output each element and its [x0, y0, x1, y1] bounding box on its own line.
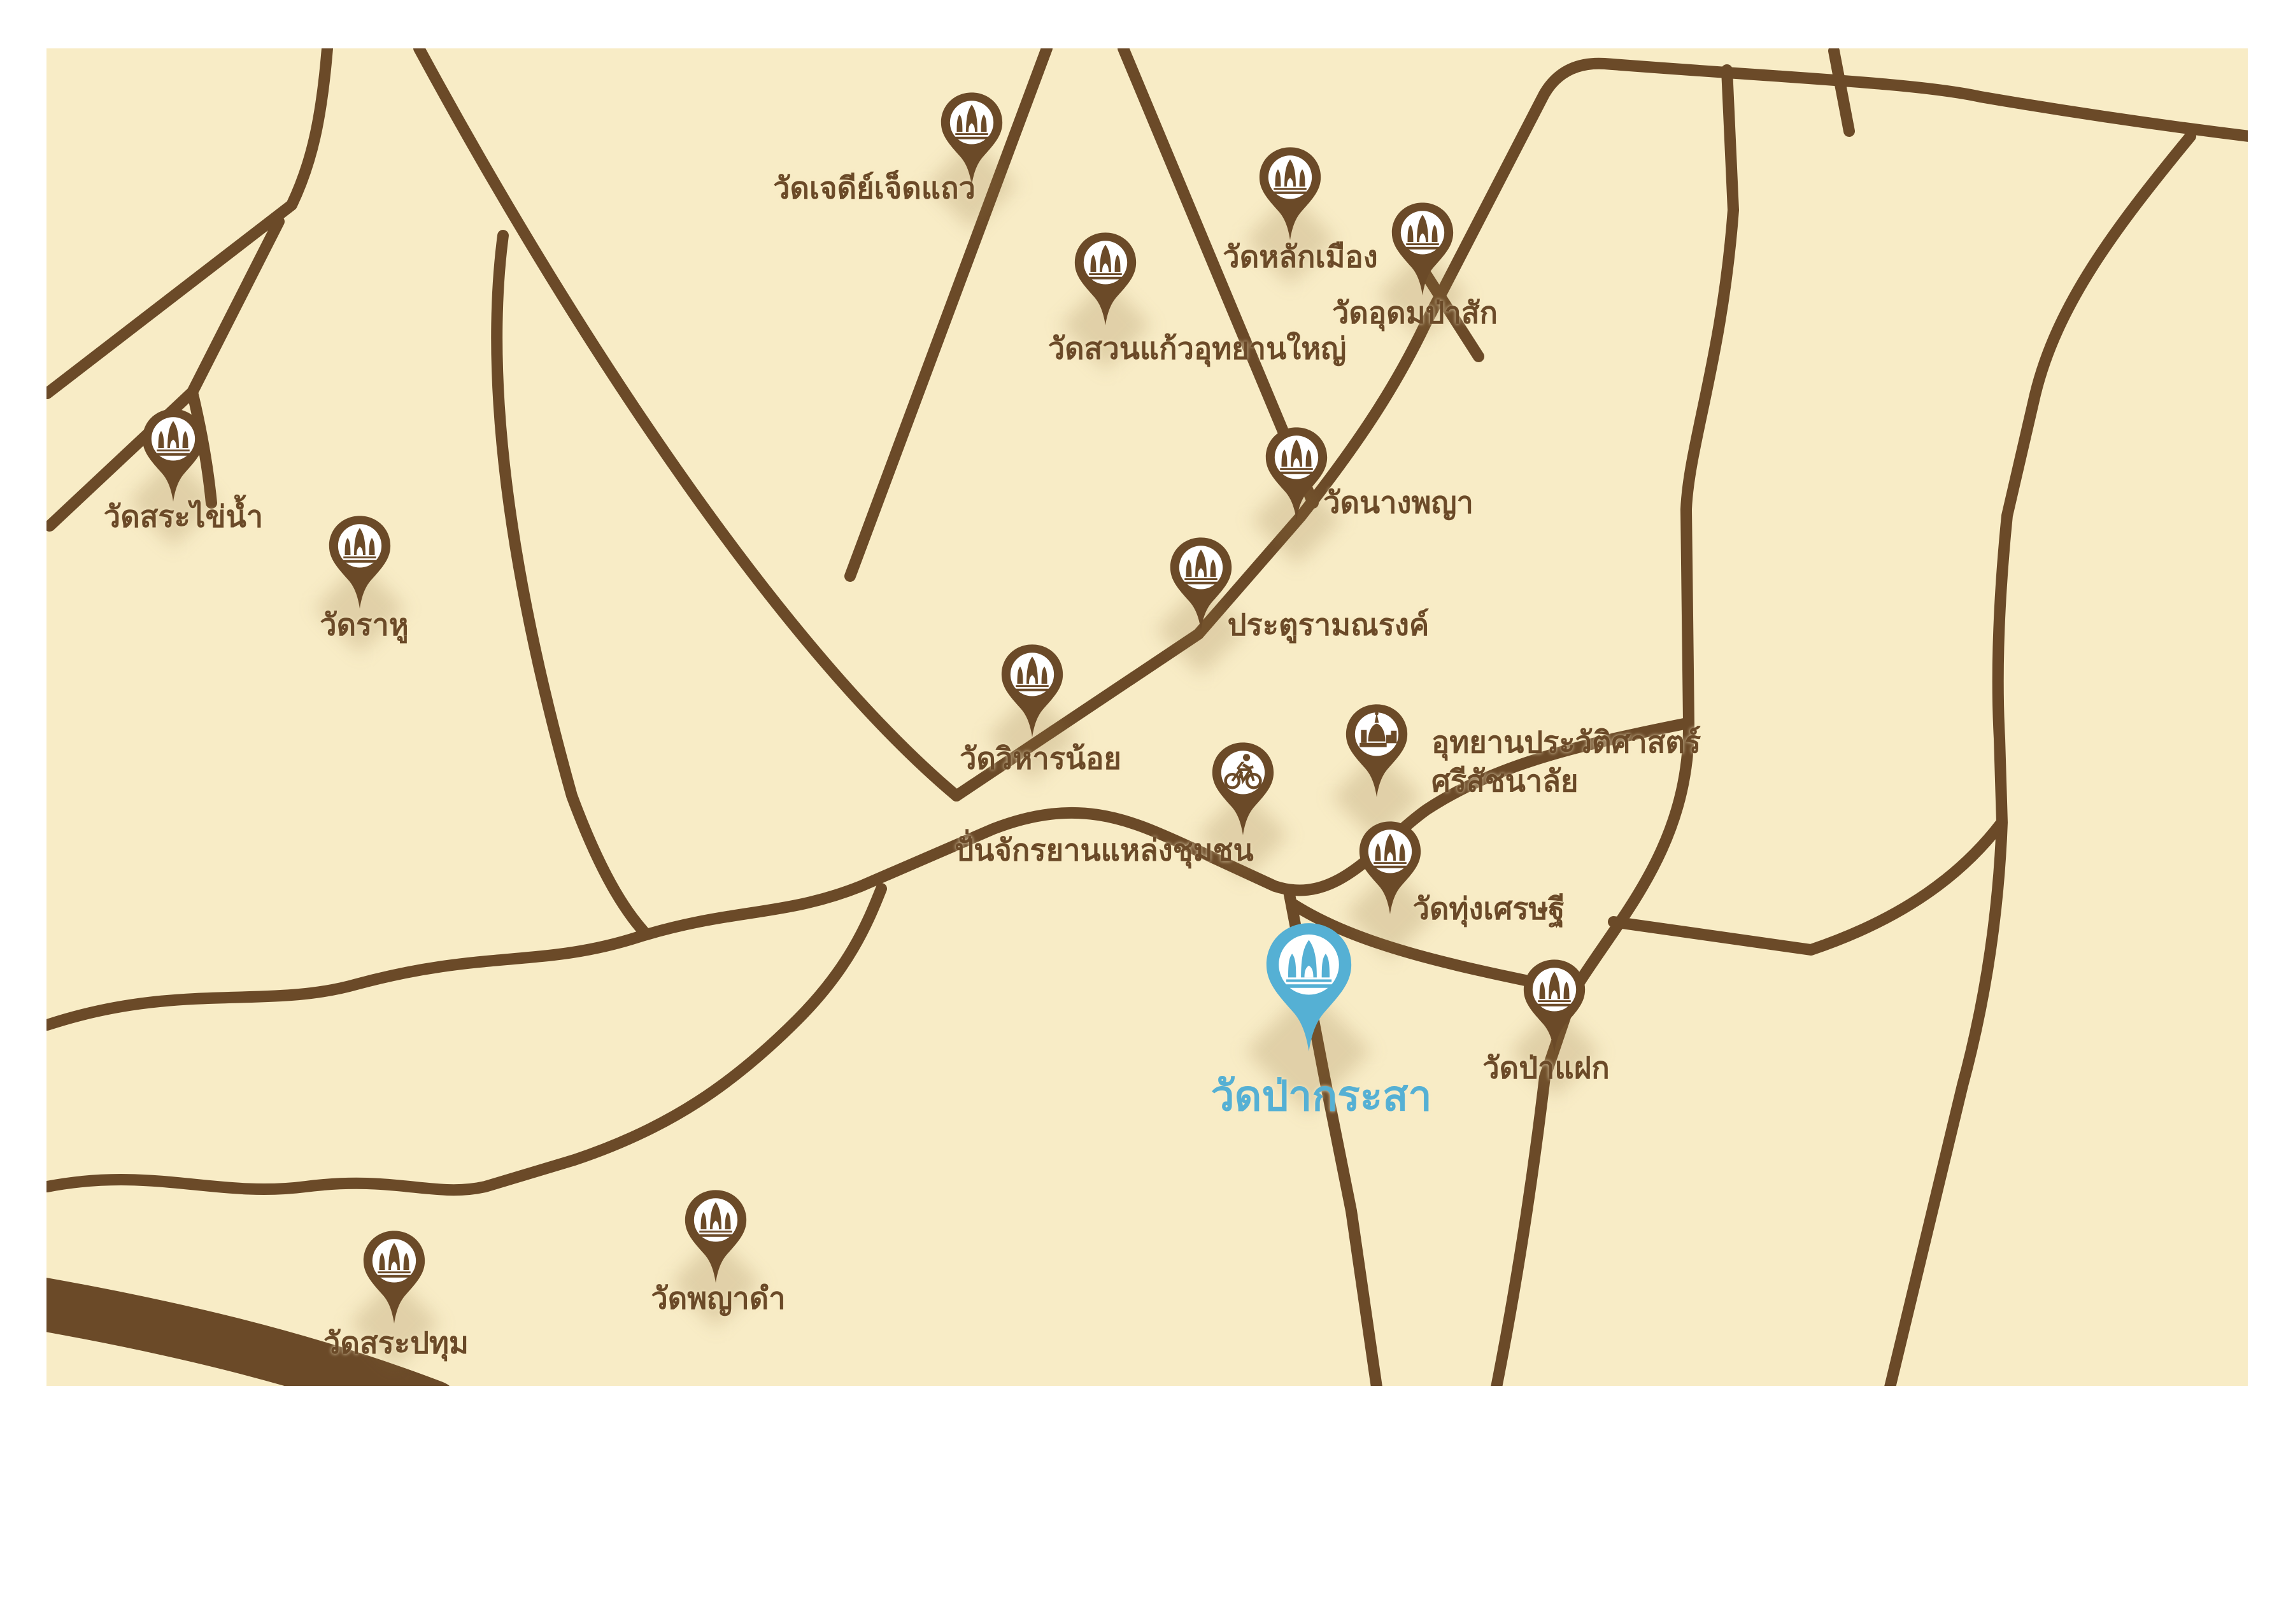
road-7: [956, 64, 2248, 796]
map-pin-label-bike-community-spot: ปั่นจักรยานแหล่งชุมชน: [955, 831, 1253, 870]
temple-icon: [997, 643, 1068, 743]
temple-icon: [138, 407, 209, 507]
temple-icon: [1070, 231, 1141, 331]
map-pin-label-wat-sa-pathum: วัดสระปทุม: [323, 1324, 469, 1362]
info-panel: ๐มรดกพระร่วง๐ วัดป่ากระสา ที่อยู่ :อุทยา…: [0, 1386, 2279, 1624]
temple-icon: [359, 1229, 430, 1329]
road-16: [47, 889, 881, 1190]
map-pin-wat-wihan-noi[interactable]: [997, 643, 1068, 743]
map-pin-label-wat-sa-khai-nam: วัดสระไข่น้ำ: [104, 497, 263, 536]
temple-icon: [1254, 146, 1326, 246]
map-pin-label-wat-chedi-chet-thaeo: วัดเจดีย์เจ็ดแถว: [773, 169, 976, 208]
temple-icon: [1261, 426, 1332, 526]
historical-park-icon: [1341, 703, 1412, 803]
map-pin-wat-phaya-dam[interactable]: [680, 1189, 751, 1289]
temple-icon: [1387, 201, 1458, 301]
map-pin-wat-pa-faek[interactable]: [1519, 958, 1590, 1058]
bicycle-icon: [1207, 741, 1279, 841]
map-pin-wat-rahu[interactable]: [324, 514, 395, 614]
map-pin-bike-community-spot[interactable]: [1207, 741, 1279, 841]
map-pin-label-wat-pa-krasa: วัดป่ากระสา: [1210, 1069, 1431, 1124]
map-pin-label-wat-lak-mueang: วัดหลักเมือง: [1223, 237, 1377, 276]
map-pin-pratu-ram-narong[interactable]: [1165, 536, 1237, 636]
road-1: [47, 48, 327, 393]
temple-icon: [680, 1189, 751, 1289]
map-pin-wat-sa-khai-nam[interactable]: [138, 407, 209, 507]
map-pin-wat-sa-pathum[interactable]: [359, 1229, 430, 1329]
map-pin-wat-nang-phaya[interactable]: [1261, 426, 1332, 526]
map-pin-label-wat-udom-pa-sak: วัดอุดมป่าสัก: [1332, 293, 1498, 332]
road-11: [1890, 136, 2190, 1386]
map-pin-label-wat-pa-faek: วัดป่าแฝก: [1482, 1049, 1609, 1087]
temple-icon: [1165, 536, 1237, 636]
map-pin-si-satchanalai-historical-park[interactable]: [1341, 703, 1412, 803]
map-pin-label-si-satchanalai-historical-park: อุทยานประวัติศาสตร์ ศรีสัชนาลัย: [1431, 723, 1701, 801]
map-pin-label-wat-rahu: วัดราหู: [320, 605, 409, 644]
temple-icon: [324, 514, 395, 614]
map-pin-wat-suan-kaeo-utthayan-yai[interactable]: [1070, 231, 1141, 331]
temple-icon: [1260, 921, 1358, 1059]
road-5: [497, 236, 646, 935]
map-canvas[interactable]: วัดเจดีย์เจ็ดแถว วัดสวนแก้วอุทยานใหญ่ วั…: [46, 48, 2248, 1386]
road-10: [1834, 51, 1849, 131]
map-pin-wat-lak-mueang[interactable]: [1254, 146, 1326, 246]
map-pin-wat-pa-krasa[interactable]: [1260, 921, 1358, 1059]
road-12: [1614, 824, 2001, 950]
map-pin-wat-udom-pa-sak[interactable]: [1387, 201, 1458, 301]
map-pin-label-wat-thung-setthi: วัดทุ่งเศรษฐี: [1413, 889, 1565, 928]
page: วัดเจดีย์เจ็ดแถว วัดสวนแก้วอุทยานใหญ่ วั…: [0, 0, 2279, 1624]
temple-icon: [1519, 958, 1590, 1058]
road-network: [46, 48, 2248, 1386]
map-pin-label-wat-nang-phaya: วัดนางพญา: [1323, 483, 1473, 522]
map-pin-label-wat-suan-kaeo-utthayan-yai: วัดสวนแก้วอุทยานใหญ่: [1048, 329, 1347, 368]
map-pin-label-wat-phaya-dam: วัดพญาดำ: [651, 1279, 785, 1318]
map-pin-label-pratu-ram-narong: ประตูรามณรงค์: [1228, 605, 1430, 644]
map-pin-label-wat-wihan-noi: วัดวิหารน้อย: [960, 739, 1121, 778]
